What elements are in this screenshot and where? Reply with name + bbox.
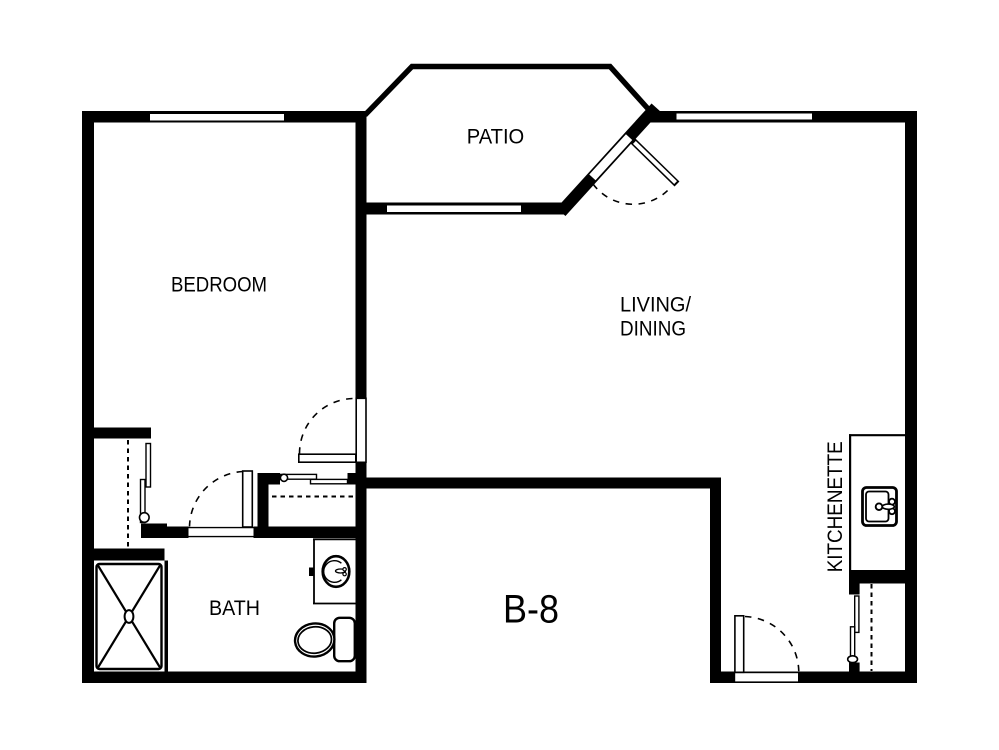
svg-text:PATIO: PATIO: [467, 125, 525, 149]
svg-text:DINING: DINING: [620, 317, 686, 341]
svg-text:KITCHENETTE: KITCHENETTE: [823, 441, 847, 572]
svg-text:B-8: B-8: [503, 588, 559, 632]
svg-text:LIVING/: LIVING/: [620, 293, 691, 317]
svg-text:BATH: BATH: [209, 596, 260, 620]
svg-text:BEDROOM: BEDROOM: [171, 273, 267, 297]
